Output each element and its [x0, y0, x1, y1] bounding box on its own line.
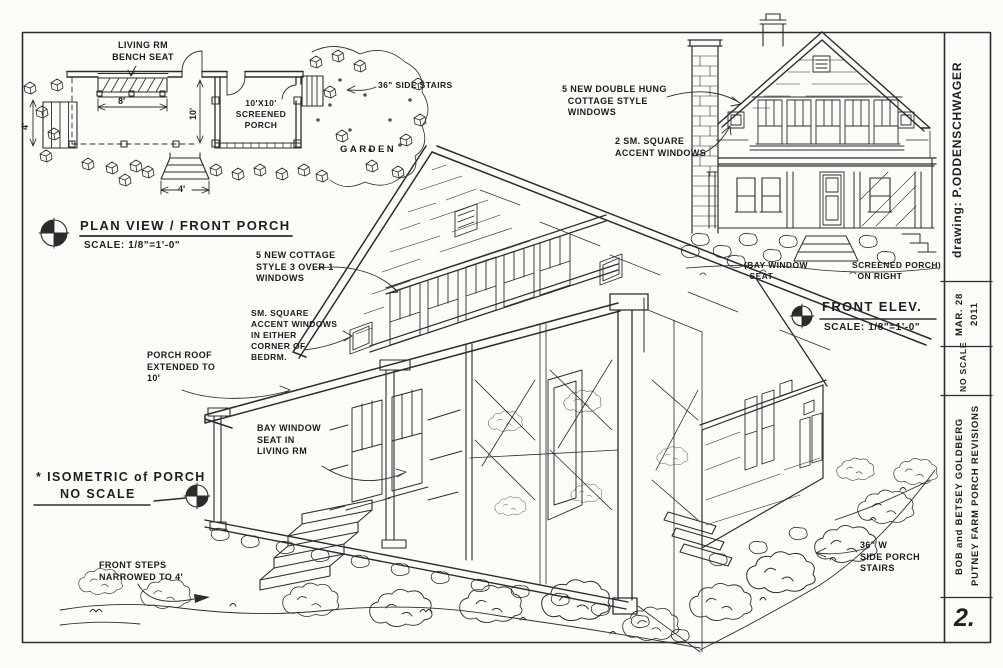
iso-bay-window-label: BAY WINDOW SEAT IN LIVING RM: [257, 423, 321, 458]
titleblock-project: BOB and BETSEY GOLDBERG PUTNEY FARM PORC…: [952, 400, 986, 592]
elev-bay-seat-label: (BAY WINDOW SEAT: [744, 260, 808, 282]
plan-dim-porch-depth: 10': [188, 108, 198, 120]
iso-scale-note: NO SCALE: [60, 487, 136, 501]
plan-dim-front-steps: 4': [178, 184, 185, 194]
elev-double-hung-label: 5 NEW DOUBLE HUNG COTTAGE STYLE WINDOWS: [562, 84, 667, 119]
iso-right-wall: [700, 380, 826, 548]
elev-screened-porch-label: SCREENED PORCH) ON RIGHT: [852, 260, 941, 282]
elev-cottage-windows: [728, 100, 914, 144]
elev-accent-label: 2 SM. SQUARE ACCENT WINDOWS: [615, 136, 706, 159]
iso-foundation: [211, 527, 807, 641]
plan-title-marker: [39, 218, 69, 248]
plan-garden-label: GARDEN: [340, 144, 396, 156]
iso-bay-windows: [330, 370, 582, 520]
titleblock-scale-note: NO SCALE: [958, 350, 978, 392]
iso-title: * ISOMETRIC of PORCH: [36, 470, 206, 484]
plan-bench-label: LIVING RM BENCH SEAT: [90, 40, 196, 63]
sheet-border: [23, 33, 993, 643]
iso-accent-windows-label: SM. SQUARE ACCENT WINDOWS IN EITHER CORN…: [251, 308, 337, 363]
elev-scale: SCALE: 1/8"=1'-0": [824, 322, 920, 333]
elev-title: FRONT ELEV.: [822, 299, 922, 314]
titleblock-sheet-number: 2.: [954, 604, 975, 633]
plan-view-title: PLAN VIEW / FRONT PORCH: [80, 218, 291, 233]
plan-dim-left-stairs: 4': [20, 123, 30, 130]
plan-dim-bench-width: 8': [118, 96, 125, 106]
plan-side-stairs-label: 36" SIDE STAIRS: [378, 80, 453, 91]
iso-front-steps-label: FRONT STEPS NARROWED TO 4': [99, 560, 183, 583]
iso-cottage-windows-label: 5 NEW COTTAGE STYLE 3 OVER 1 WINDOWS: [256, 250, 336, 285]
drawing-sheet: LIVING RM BENCH SEAT 36" SIDE STAIRS 10'…: [0, 0, 1003, 668]
plan-view-scale: SCALE: 1/8"=1'-0": [84, 240, 180, 251]
elev-title-marker: [790, 304, 814, 328]
titleblock-drawing-by: drawing: P.ODDENSCHWAGER: [950, 45, 986, 275]
plan-planting: [24, 50, 426, 186]
iso-side-stairs-label: 36" W SIDE PORCH STAIRS: [860, 540, 920, 575]
iso-title-marker: [184, 483, 210, 509]
elev-porch: [707, 158, 934, 228]
iso-porch-roof-label: PORCH ROOF EXTENDED TO 10': [147, 350, 215, 385]
titleblock-date: MAR. 28 2011: [952, 286, 984, 342]
plan-screened-porch-label: 10'X10' SCREENED PORCH: [228, 98, 294, 131]
iso-leaders: [138, 267, 868, 603]
